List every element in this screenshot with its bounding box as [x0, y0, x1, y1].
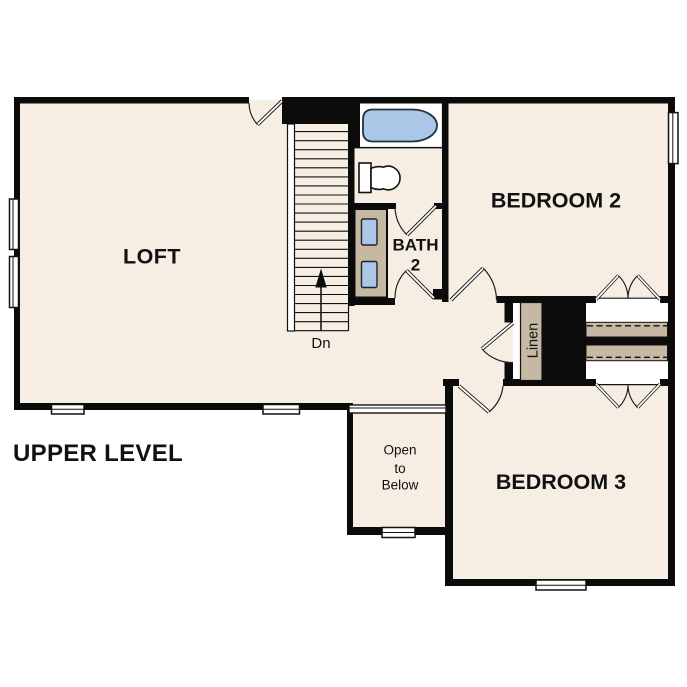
svg-text:to: to — [394, 461, 405, 476]
svg-text:BEDROOM 2: BEDROOM 2 — [491, 189, 621, 213]
svg-text:BATH: BATH — [393, 236, 439, 255]
svg-text:2: 2 — [411, 256, 420, 275]
svg-text:UPPER LEVEL: UPPER LEVEL — [13, 440, 183, 467]
svg-text:Below: Below — [382, 478, 419, 493]
svg-text:LOFT: LOFT — [123, 245, 181, 269]
svg-text:Open: Open — [383, 443, 416, 458]
svg-text:Dn: Dn — [311, 335, 330, 352]
svg-text:BEDROOM 3: BEDROOM 3 — [496, 470, 626, 494]
svg-text:Linen: Linen — [526, 323, 542, 358]
